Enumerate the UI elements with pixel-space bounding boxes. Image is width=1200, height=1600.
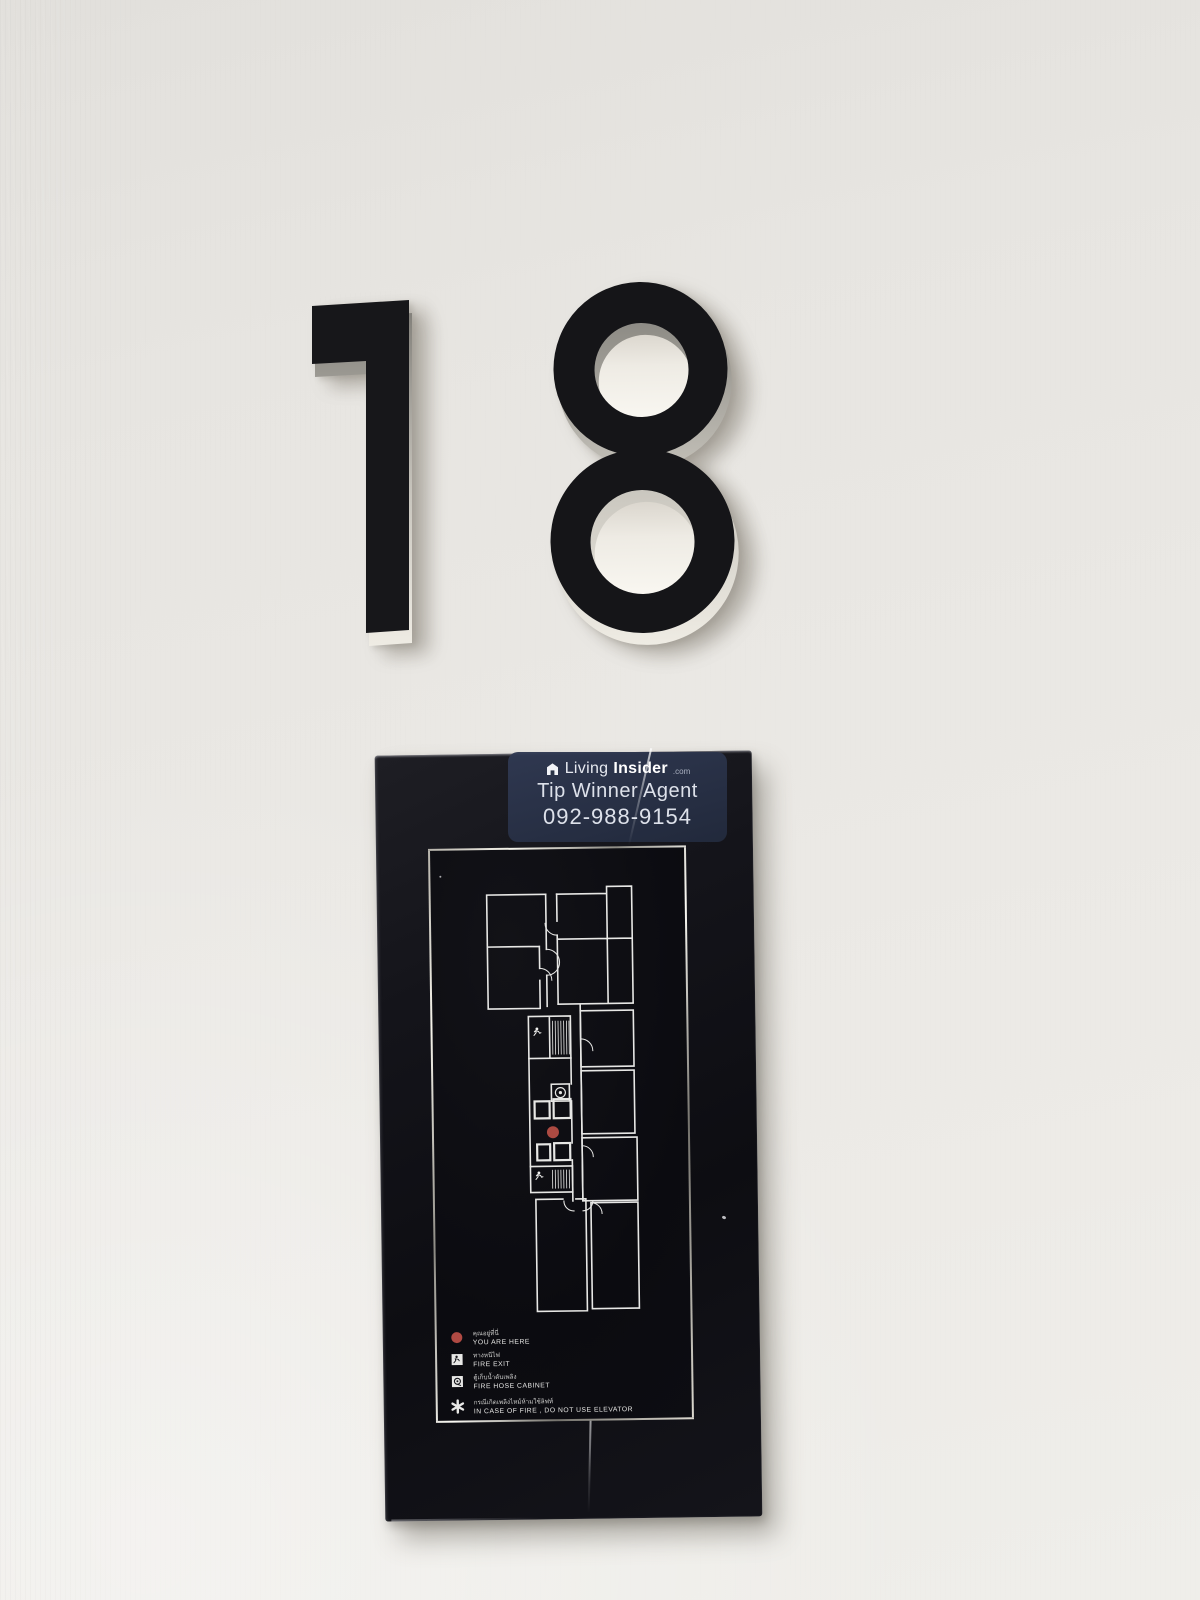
legend-fire-exit-icon bbox=[452, 1354, 463, 1365]
legend-asterisk-icon bbox=[452, 1401, 463, 1413]
legend-fire-hose-th: ตู้เก็บน้ำดับเพลิง bbox=[473, 1372, 516, 1382]
glass-reflection-streak bbox=[588, 1421, 592, 1513]
legend-fire-hose-icon bbox=[452, 1376, 463, 1387]
legend-no-elevator-en: IN CASE OF FIRE , DO NOT USE ELEVATOR bbox=[474, 1406, 633, 1415]
legend-fire-exit-th: ทางหนีไฟ bbox=[473, 1351, 500, 1359]
fire-exit-runner-icon-2 bbox=[536, 1171, 543, 1179]
legend-you-are-here-dot bbox=[451, 1332, 462, 1343]
legend-fire-exit-en: FIRE EXIT bbox=[473, 1361, 510, 1369]
numeral-1 bbox=[312, 300, 412, 646]
sign-inner-frame: คุณอยู่ที่นี่ YOU ARE HERE ทางหนีไฟ FIRE… bbox=[428, 845, 694, 1423]
fire-exit-runner-icon-1 bbox=[534, 1027, 541, 1035]
agent-name: Tip Winner Agent bbox=[508, 780, 727, 803]
living-insider-logo-icon bbox=[545, 762, 560, 777]
floor-plan: คุณอยู่ที่นี่ YOU ARE HERE ทางหนีไฟ FIRE… bbox=[430, 847, 692, 1416]
floor-plan-walls bbox=[487, 886, 640, 1312]
legend-fire-hose-en: FIRE HOSE CABINET bbox=[473, 1382, 550, 1390]
evacuation-sign-panel: คุณอยู่ที่นี่ YOU ARE HERE ทางหนีไฟ FIRE… bbox=[375, 750, 763, 1521]
legend-you-are-here-th: คุณอยู่ที่นี่ bbox=[473, 1328, 500, 1337]
sign-legend: คุณอยู่ที่นี่ YOU ARE HERE ทางหนีไฟ FIRE… bbox=[451, 1326, 633, 1416]
watermark-badge: LivingInsider.com Tip Winner Agent 092-9… bbox=[508, 752, 727, 842]
agent-phone: 092-988-9154 bbox=[508, 804, 727, 830]
brand-living: Living bbox=[565, 760, 609, 778]
brand-insider: Insider bbox=[613, 760, 668, 778]
panel-speck bbox=[439, 876, 441, 878]
numeral-8 bbox=[546, 280, 740, 646]
brand-tld: .com bbox=[673, 767, 690, 776]
you-are-here-dot bbox=[547, 1126, 559, 1138]
brand-row: LivingInsider.com bbox=[508, 761, 727, 777]
legend-you-are-here-en: YOU ARE HERE bbox=[473, 1339, 530, 1347]
legend-no-elevator-th: กรณีเกิดเพลิงไหม้ห้ามใช้ลิฟท์ bbox=[474, 1397, 554, 1406]
